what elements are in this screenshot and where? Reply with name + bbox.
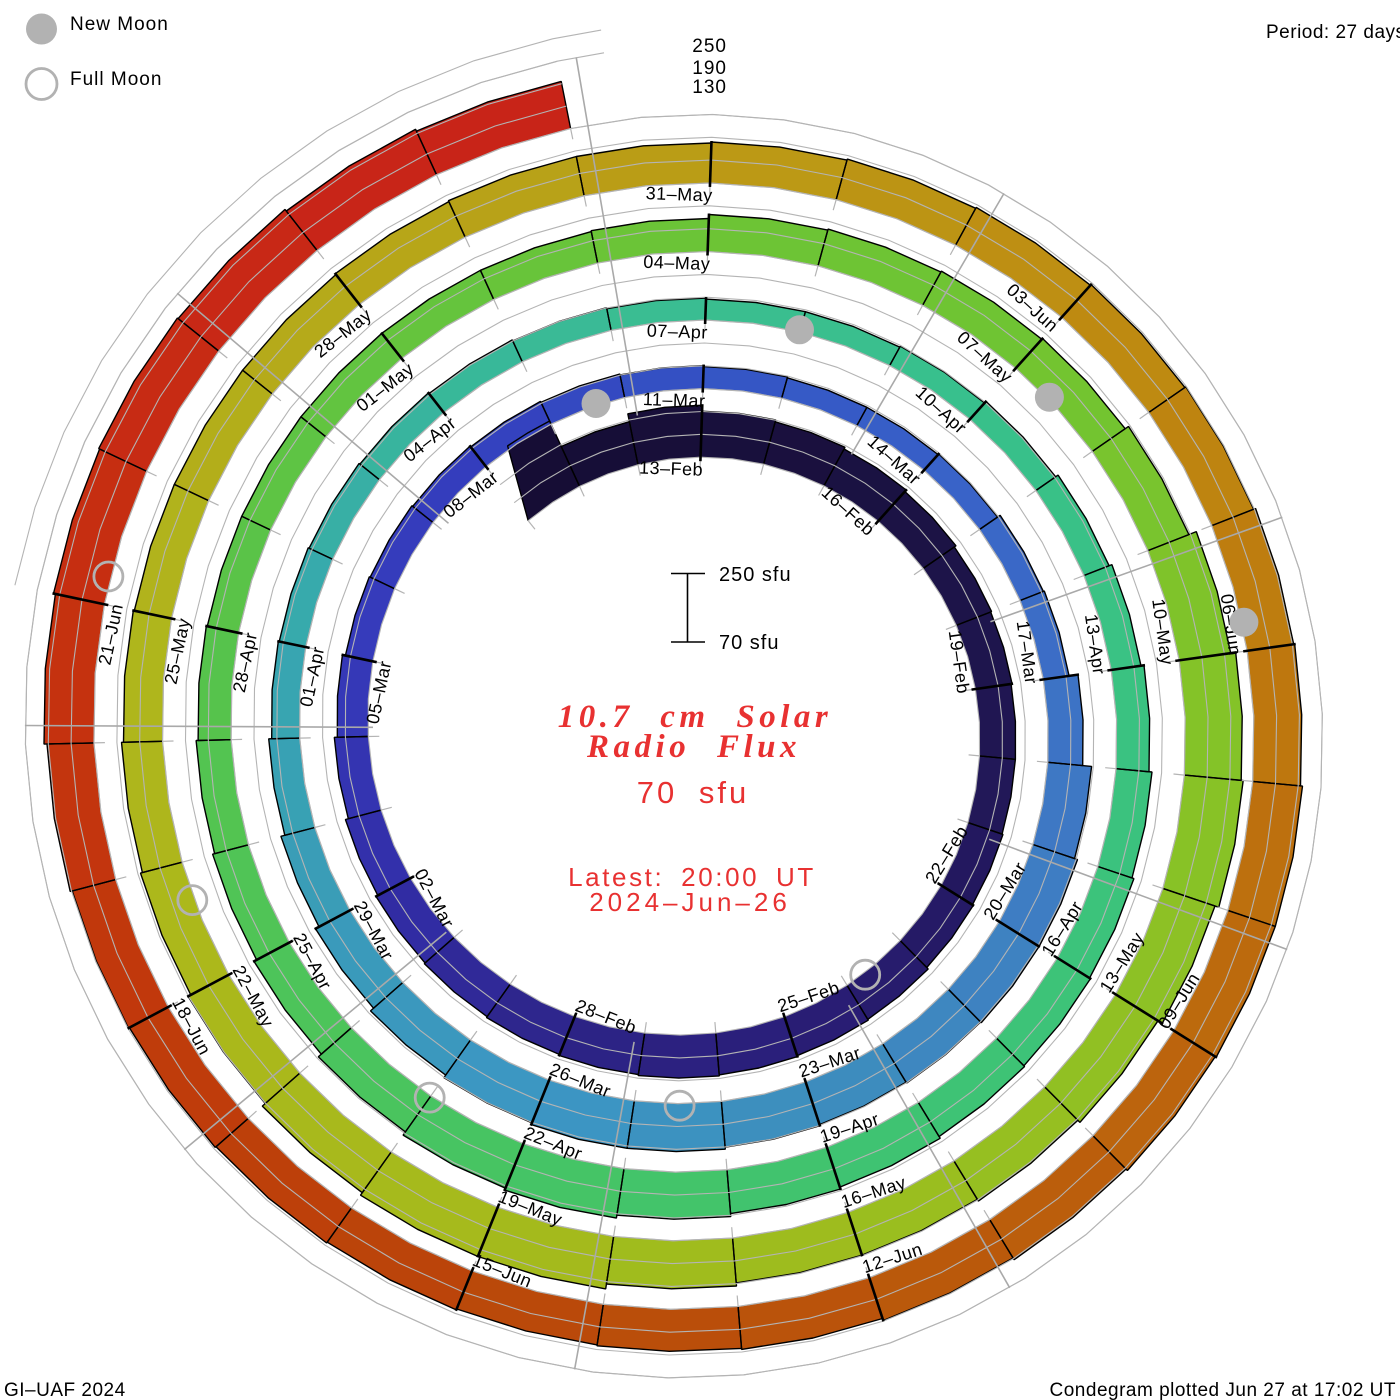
svg-text:11–Mar: 11–Mar: [642, 389, 705, 411]
svg-text:31–May: 31–May: [645, 183, 713, 205]
svg-text:130: 130: [692, 77, 727, 98]
svg-text:70 sfu: 70 sfu: [719, 632, 779, 654]
svg-text:250 sfu: 250 sfu: [719, 564, 792, 586]
svg-text:Radio Flux: Radio Flux: [586, 729, 801, 765]
svg-text:2024–Jun–26: 2024–Jun–26: [589, 887, 791, 917]
svg-text:GI–UAF 2024: GI–UAF 2024: [4, 1380, 126, 1400]
svg-text:Condegram plotted Jun 27 at 17: Condegram plotted Jun 27 at 17:02 UT: [1050, 1380, 1396, 1400]
svg-text:Period: 27 days: Period: 27 days: [1266, 22, 1400, 43]
svg-text:13–Feb: 13–Feb: [639, 458, 704, 480]
svg-text:07–Apr: 07–Apr: [647, 320, 709, 342]
svg-text:New Moon: New Moon: [70, 14, 169, 35]
svg-text:70 sfu: 70 sfu: [637, 775, 749, 810]
svg-text:190: 190: [692, 58, 727, 79]
svg-text:04–May: 04–May: [643, 252, 711, 274]
svg-text:Full Moon: Full Moon: [70, 69, 162, 90]
svg-text:250: 250: [692, 36, 727, 57]
